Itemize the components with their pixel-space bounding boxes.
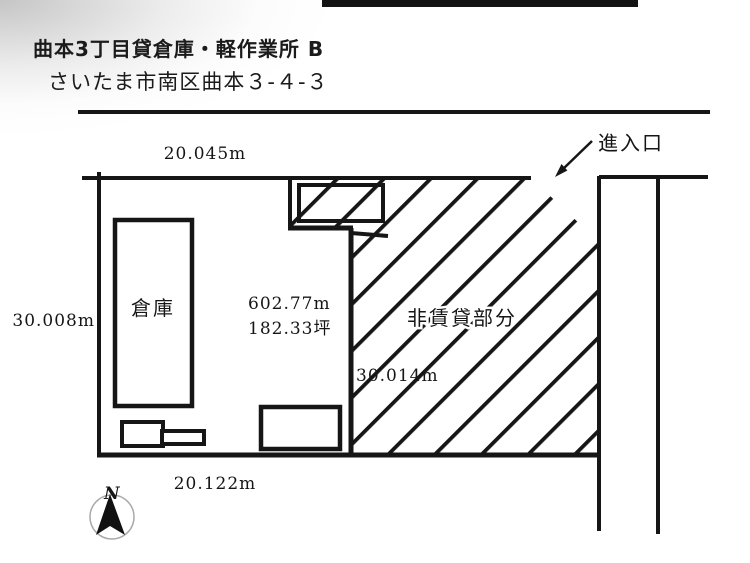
site-plan-drawing: N 20.045m 30.008m 20.122m 30.014m 602.77… <box>0 0 750 563</box>
non-rental-label: 非賃貸部分 <box>407 306 517 330</box>
dimension-left: 30.008m <box>12 311 95 331</box>
outbuilding-b <box>162 431 204 444</box>
entrance-arrow-shaft <box>562 141 592 170</box>
site-plan-document: 曲本3丁目貸倉庫・軽作業所 B さいたま市南区曲本３-４-３ <box>0 0 750 563</box>
dimension-top: 20.045m <box>164 144 247 164</box>
north-label: N <box>103 484 121 504</box>
area-tsubo: 182.33坪 <box>248 319 331 339</box>
outbuilding-c <box>261 407 340 449</box>
dimension-bottom: 20.122m <box>174 474 257 494</box>
outbuilding-a <box>122 422 163 446</box>
entrance-label: 進入口 <box>598 131 664 155</box>
warehouse-label: 倉庫 <box>131 296 175 320</box>
dimension-inner-right: 30.014m <box>356 366 439 386</box>
area-square-meters: 602.77m <box>248 294 331 314</box>
